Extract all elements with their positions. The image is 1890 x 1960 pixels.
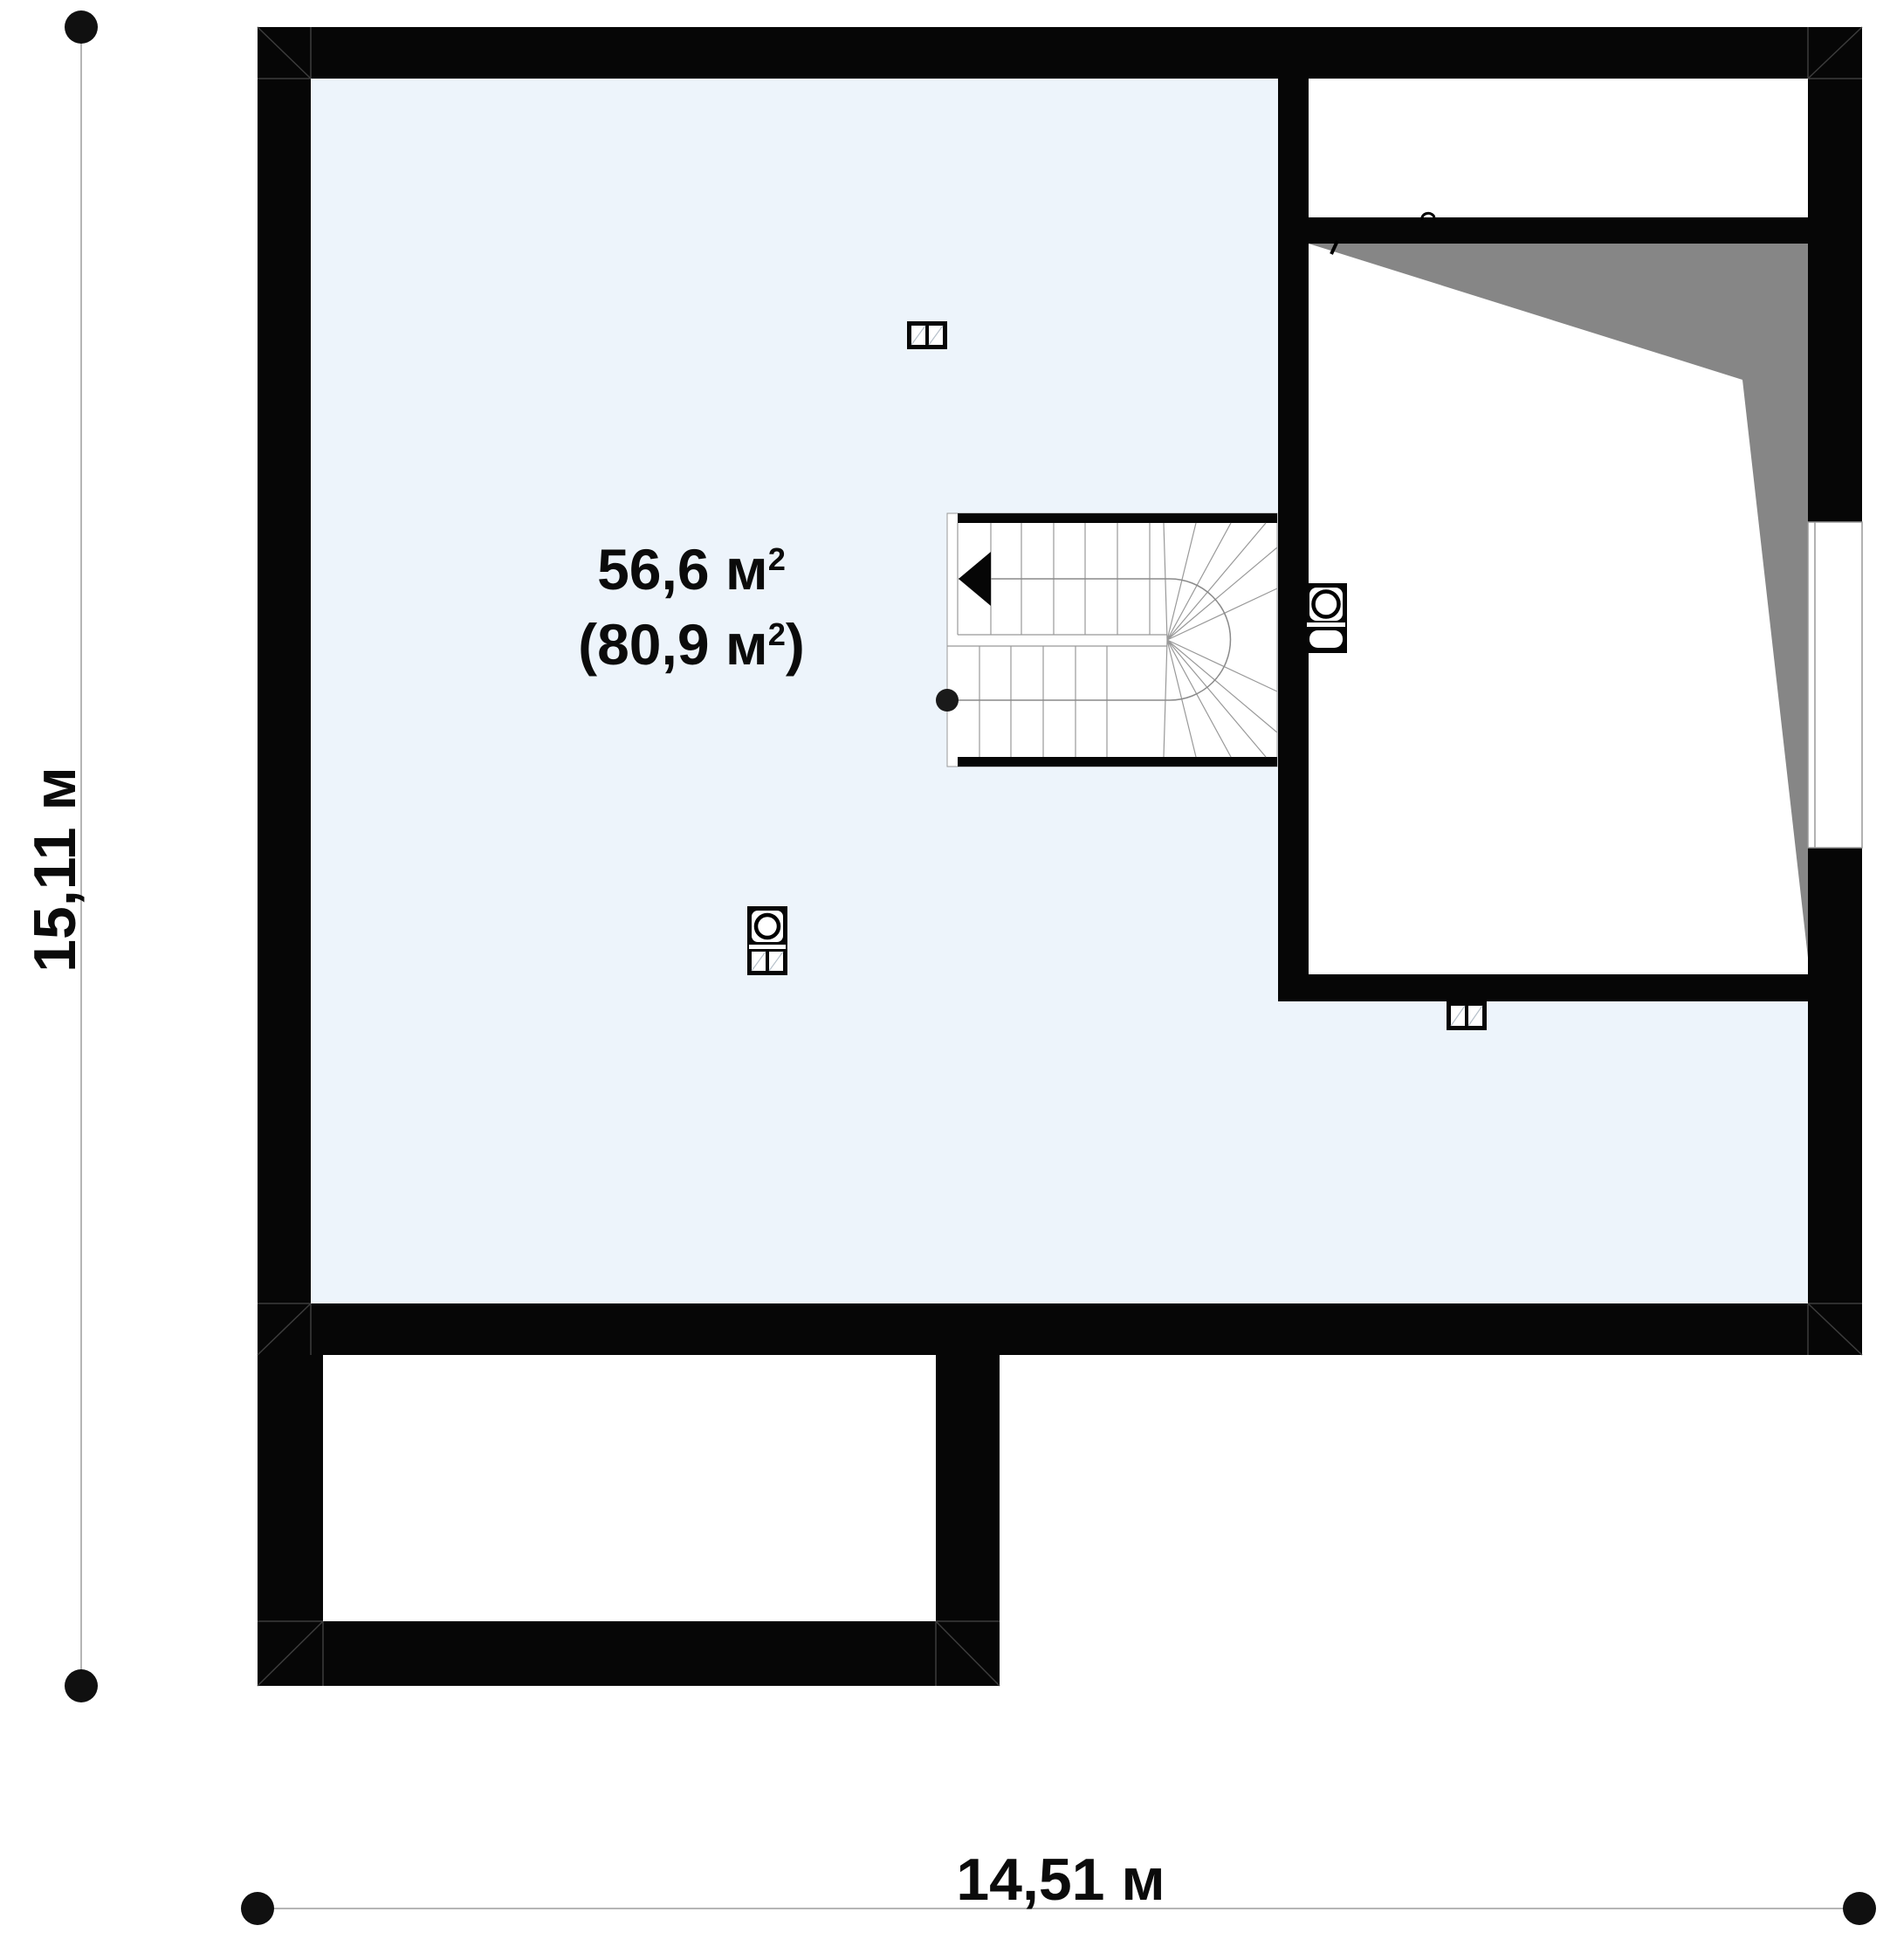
roof-window-icon (1447, 1001, 1487, 1030)
right-wall-window (1808, 522, 1862, 848)
width-dimension-label: 14,51 м (956, 1849, 1165, 1910)
wall-bottom (258, 1303, 1862, 1355)
wall-interior-mid (1309, 217, 1808, 244)
room-area-main: 56,6 м2 (578, 532, 805, 607)
stair-wall-top (958, 513, 1277, 523)
survey-dot-icon (1843, 1892, 1876, 1925)
chimney-icon (747, 906, 787, 975)
stair-start-dot-icon (936, 689, 959, 712)
room-area-gross: (80,9 м2) (578, 607, 805, 682)
plan-canvas: 56,6 м2 (80,9 м2) 15,11 м 14,51 м (0, 0, 1890, 1960)
survey-dot-icon (65, 1669, 98, 1702)
extension-wall-bottom (258, 1621, 1000, 1686)
survey-dot-icon (241, 1892, 274, 1925)
wall-right-room-bottom (1309, 974, 1808, 1001)
staircase (936, 513, 1277, 767)
floor-plan-svg (0, 0, 1890, 1960)
chimney-icon (1305, 583, 1347, 653)
extension-wall-left (258, 1355, 323, 1621)
wall-right-upper (1808, 79, 1862, 522)
wall-top (258, 27, 1862, 79)
wall-left (258, 79, 311, 1303)
wall-right-lower (1808, 848, 1862, 1303)
wall-interior-vertical (1278, 79, 1309, 1001)
height-dimension-label: 15,11 м (24, 767, 86, 973)
survey-dot-icon (65, 10, 98, 44)
extension-walls (258, 1355, 1000, 1686)
top-right-room-fill (1309, 79, 1808, 217)
stair-outline (947, 513, 1277, 767)
room-area-label: 56,6 м2 (80,9 м2) (578, 532, 805, 682)
roof-window-icon (907, 321, 947, 349)
stair-wall-bottom (958, 757, 1277, 767)
extension-wall-right (936, 1355, 1000, 1621)
